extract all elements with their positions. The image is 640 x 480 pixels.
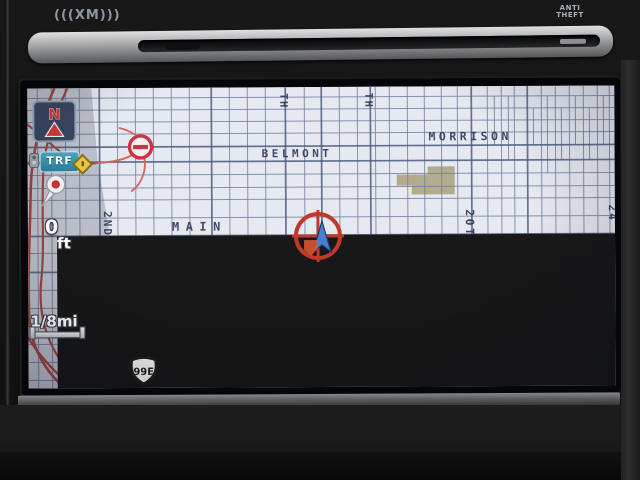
map-scale-bar [30,331,84,338]
hazard-diamond-icon [72,153,94,175]
anti-theft-line2: THEFT [548,12,592,19]
map-scale-indicator: 1/8mi [30,312,90,338]
current-position-marker [290,208,346,264]
cd-slot[interactable] [28,25,613,63]
fascia-base [0,452,640,480]
route-shield-label: 99E [133,367,154,378]
route-99e-shield: 99E [128,356,160,386]
map-canvas[interactable]: BELMONTMORRISONMAINHAWTHORNETHTH2ND7TH12… [27,85,616,388]
cd-slot-tab [560,39,586,44]
street-label: TH [362,93,374,109]
nav-screen: BELMONTMORRISONMAINHAWTHORNETHTH2ND7TH12… [20,77,622,395]
xm-radio-logo: (((XM))) [54,8,121,23]
cd-slot-opening[interactable] [138,35,600,53]
map-pin-icon [40,174,68,210]
street-label: BELMONT [262,147,333,160]
cd-slot-notch [166,42,200,49]
compass-north-indicator: N [32,100,76,142]
street-label: MORRISON [428,129,511,143]
fascia-right-edge [621,60,640,480]
street-label: TH [277,93,289,109]
head-unit: (((XM))) ANTI THEFT BELMONTMORRISONMAINH… [0,0,640,480]
road-closure-icon [127,134,153,160]
anti-theft-label: ANTI THEFT [548,5,592,19]
compass-n-letter: N [48,105,61,123]
